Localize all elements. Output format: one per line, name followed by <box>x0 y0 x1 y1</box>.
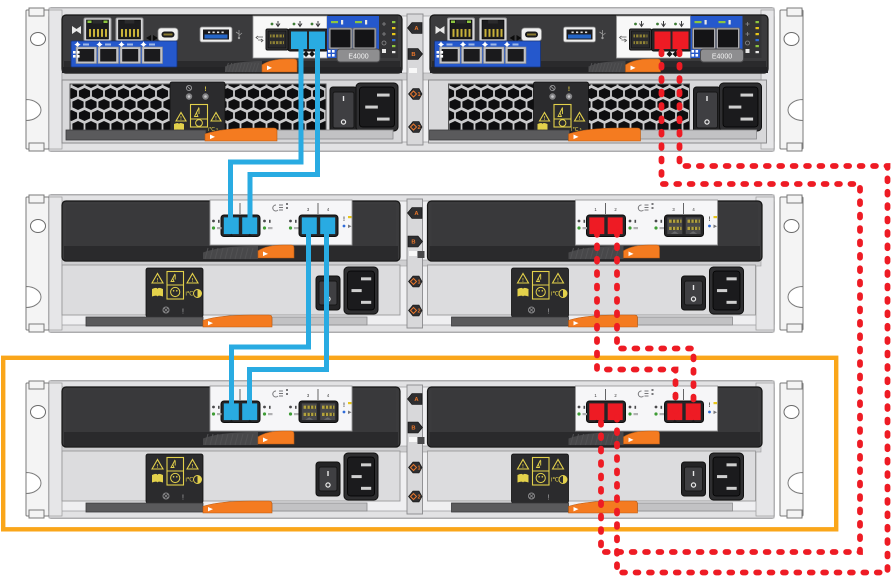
svg-text:1: 1 <box>417 280 420 286</box>
svg-text:B: B <box>411 52 415 58</box>
svg-text:!: ! <box>182 309 184 316</box>
svg-text:1: 1 <box>417 466 420 472</box>
svg-text:!: ! <box>204 86 206 93</box>
svg-text:!: ! <box>343 217 345 223</box>
svg-text:!: ! <box>343 403 345 409</box>
svg-text:E4000: E4000 <box>348 53 368 60</box>
svg-text:!: ! <box>568 86 570 93</box>
svg-text:B: B <box>411 426 415 432</box>
svg-text:i℃: i℃ <box>551 478 559 484</box>
svg-text:!: ! <box>709 217 711 223</box>
svg-text:i℃: i℃ <box>185 478 193 484</box>
svg-text:E4000: E4000 <box>712 53 732 60</box>
svg-text:1: 1 <box>417 92 420 98</box>
svg-text:B: B <box>411 240 415 246</box>
svg-text:i℃: i℃ <box>185 292 193 298</box>
svg-text:!: ! <box>548 495 550 502</box>
svg-text:i℃: i℃ <box>551 292 559 298</box>
svg-text:!: ! <box>182 495 184 502</box>
svg-text:2: 2 <box>417 495 420 501</box>
svg-text:2: 2 <box>417 125 420 131</box>
svg-text:!: ! <box>709 403 711 409</box>
svg-text:2: 2 <box>417 309 420 315</box>
svg-text:!: ! <box>548 309 550 316</box>
